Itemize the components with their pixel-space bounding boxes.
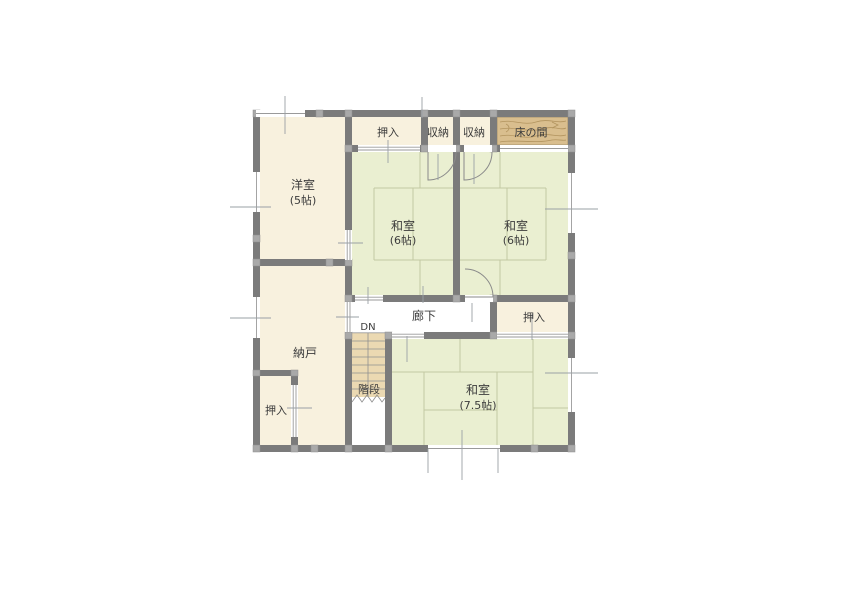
storeroom-label: 納戸	[293, 346, 317, 360]
washitsu-nw-label: 和室	[391, 218, 415, 233]
washitsu-s-label: 和室	[466, 382, 490, 397]
tokonoma-label: 床の間	[515, 125, 548, 139]
western-room-label: 洋室	[291, 177, 315, 192]
closet-top-label: 押入	[377, 125, 399, 139]
closet-sw-label: 押入	[265, 403, 287, 417]
washitsu-ne-size: (6帖)	[503, 234, 530, 247]
storage-1-label: 収納	[427, 126, 449, 139]
room-fills	[253, 110, 575, 452]
stairs-direction-label: DN	[360, 322, 375, 333]
western-room-size: (5帖)	[290, 194, 317, 207]
floor-plan: 洋室 (5帖) 和室 (6帖) 和室 (6帖) 和室 (7.5帖) 納戸 廊下 …	[0, 0, 848, 600]
washitsu-nw-size: (6帖)	[390, 234, 417, 247]
washitsu-s-size: (7.5帖)	[459, 399, 496, 412]
storage-2-label: 収納	[463, 126, 485, 139]
hallway-label: 廊下	[412, 308, 436, 323]
stairs-label: 階段	[358, 382, 380, 396]
washitsu-ne-label: 和室	[504, 218, 528, 233]
floor-plan-page: 洋室 (5帖) 和室 (6帖) 和室 (6帖) 和室 (7.5帖) 納戸 廊下 …	[0, 0, 848, 600]
closet-east-label: 押入	[523, 310, 545, 324]
